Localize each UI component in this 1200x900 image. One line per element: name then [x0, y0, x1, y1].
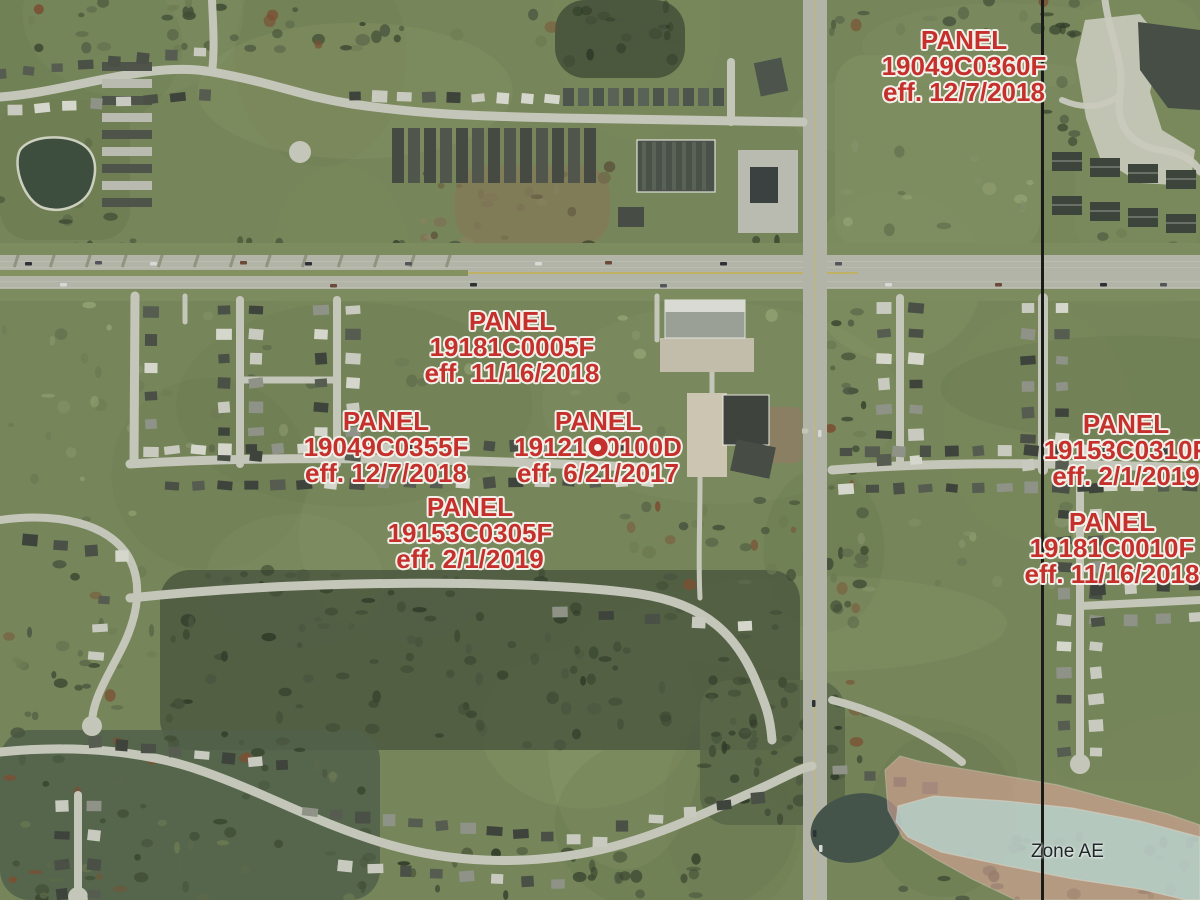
panel-word: PANEL [425, 308, 600, 334]
panel-word: PANEL [882, 27, 1047, 53]
panel-point-marker-icon [588, 438, 607, 457]
panel-effective-date: eff. 11/16/2018 [1025, 561, 1200, 587]
map-canvas[interactable]: Zone AE PANEL 19049C0360F eff. 12/7/2018… [0, 0, 1200, 900]
panel-number: 19049C0355F [304, 434, 469, 460]
panel-number: 19049C0360F [882, 53, 1047, 79]
panel-effective-date: eff. 6/21/2017 [514, 460, 682, 486]
flood-panel-label: PANEL 19121C0100D eff. 6/21/2017 [514, 408, 682, 486]
flood-panel-label: PANEL 19049C0355F eff. 12/7/2018 [304, 408, 469, 486]
flood-panel-label: PANEL 19049C0360F eff. 12/7/2018 [882, 27, 1047, 105]
flood-zone-ae-label: Zone AE [1031, 841, 1104, 863]
panel-word: PANEL [304, 408, 469, 434]
panel-word: PANEL [388, 494, 553, 520]
panel-number: 19181C0010F [1025, 535, 1200, 561]
panel-effective-date: eff. 2/1/2019 [388, 546, 553, 572]
flood-zone-ae-text: Zone AE [1031, 841, 1104, 862]
panel-effective-date: eff. 11/16/2018 [425, 360, 600, 386]
panel-word: PANEL [514, 408, 682, 434]
flood-panel-label: PANEL 19153C0310F eff. 2/1/2019 [1044, 411, 1200, 489]
panel-effective-date: eff. 12/7/2018 [882, 79, 1047, 105]
panel-effective-date: eff. 2/1/2019 [1044, 463, 1200, 489]
panel-word: PANEL [1025, 509, 1200, 535]
panel-number: 19181C0005F [425, 334, 600, 360]
panel-word: PANEL [1044, 411, 1200, 437]
flood-panel-label: PANEL 19181C0010F eff. 11/16/2018 [1025, 509, 1200, 587]
flood-panel-label: PANEL 19181C0005F eff. 11/16/2018 [425, 308, 600, 386]
flood-panel-label: PANEL 19153C0305F eff. 2/1/2019 [388, 494, 553, 572]
panel-number: 19153C0305F [388, 520, 553, 546]
panel-number: 19153C0310F [1044, 437, 1200, 463]
panel-effective-date: eff. 12/7/2018 [304, 460, 469, 486]
